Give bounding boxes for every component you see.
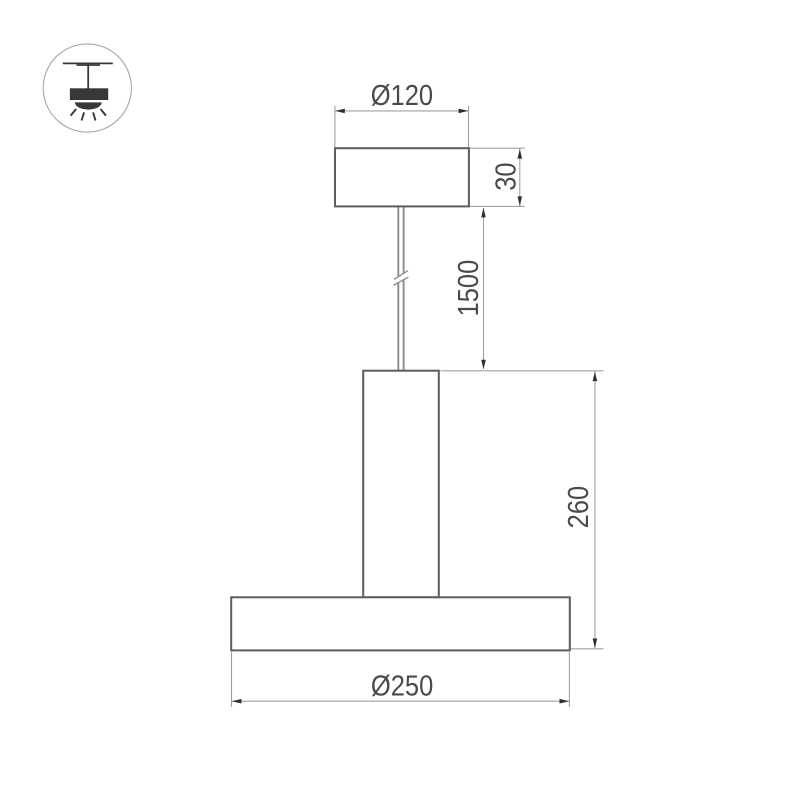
svg-text:260: 260	[561, 486, 594, 529]
svg-text:Ø250: Ø250	[371, 669, 433, 702]
svg-text:Ø120: Ø120	[371, 78, 433, 111]
svg-text:1500: 1500	[452, 260, 485, 317]
svg-text:30: 30	[489, 162, 522, 190]
